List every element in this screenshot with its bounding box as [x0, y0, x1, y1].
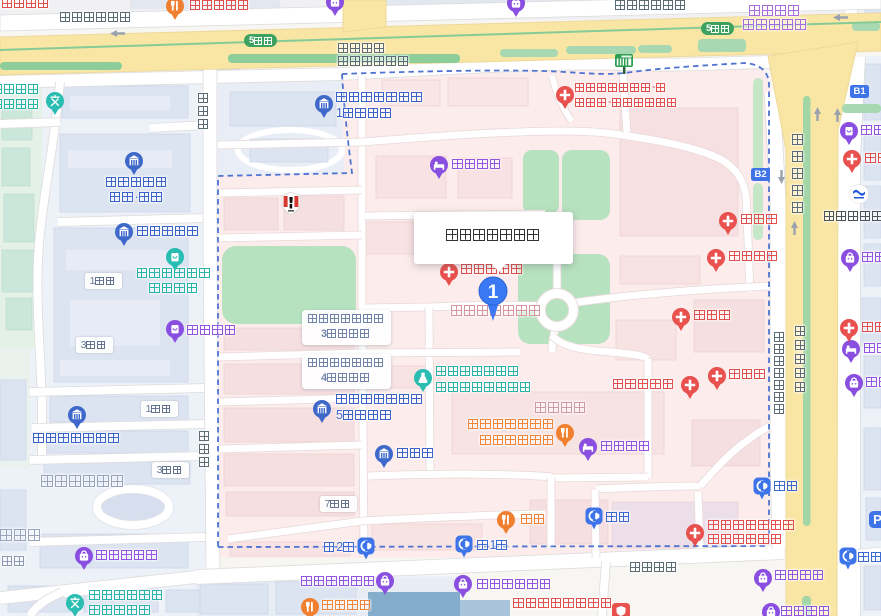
svg-text:1: 1	[488, 282, 499, 303]
